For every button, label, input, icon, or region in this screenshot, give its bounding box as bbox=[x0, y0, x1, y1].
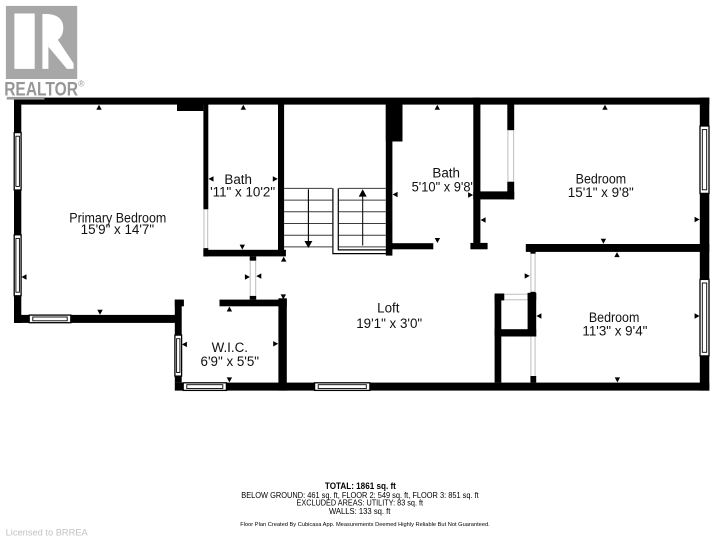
svg-text:Loft: Loft bbox=[377, 300, 400, 315]
svg-text:Licensed to BRREA: Licensed to BRREA bbox=[6, 528, 89, 538]
svg-text:®: ® bbox=[78, 79, 85, 89]
svg-text:WALLS: 133 sq. ft: WALLS: 133 sq. ft bbox=[329, 507, 391, 516]
svg-text:11'3" x 9'4": 11'3" x 9'4" bbox=[582, 324, 647, 339]
svg-text:19'1" x 3'0": 19'1" x 3'0" bbox=[356, 316, 422, 331]
svg-text:15'1" x 9'8": 15'1" x 9'8" bbox=[568, 185, 634, 200]
svg-text:Floor Plan Created By Cubicasa: Floor Plan Created By Cubicasa App. Meas… bbox=[240, 522, 490, 528]
svg-text:Bath: Bath bbox=[432, 166, 460, 181]
svg-text:'11" x 10'2": '11" x 10'2" bbox=[210, 184, 275, 199]
svg-text:15'9" x 14'7": 15'9" x 14'7" bbox=[81, 222, 155, 237]
svg-text:6'9" x 5'5": 6'9" x 5'5" bbox=[201, 354, 260, 369]
svg-text:5'10" x 9'8": 5'10" x 9'8" bbox=[412, 179, 476, 194]
